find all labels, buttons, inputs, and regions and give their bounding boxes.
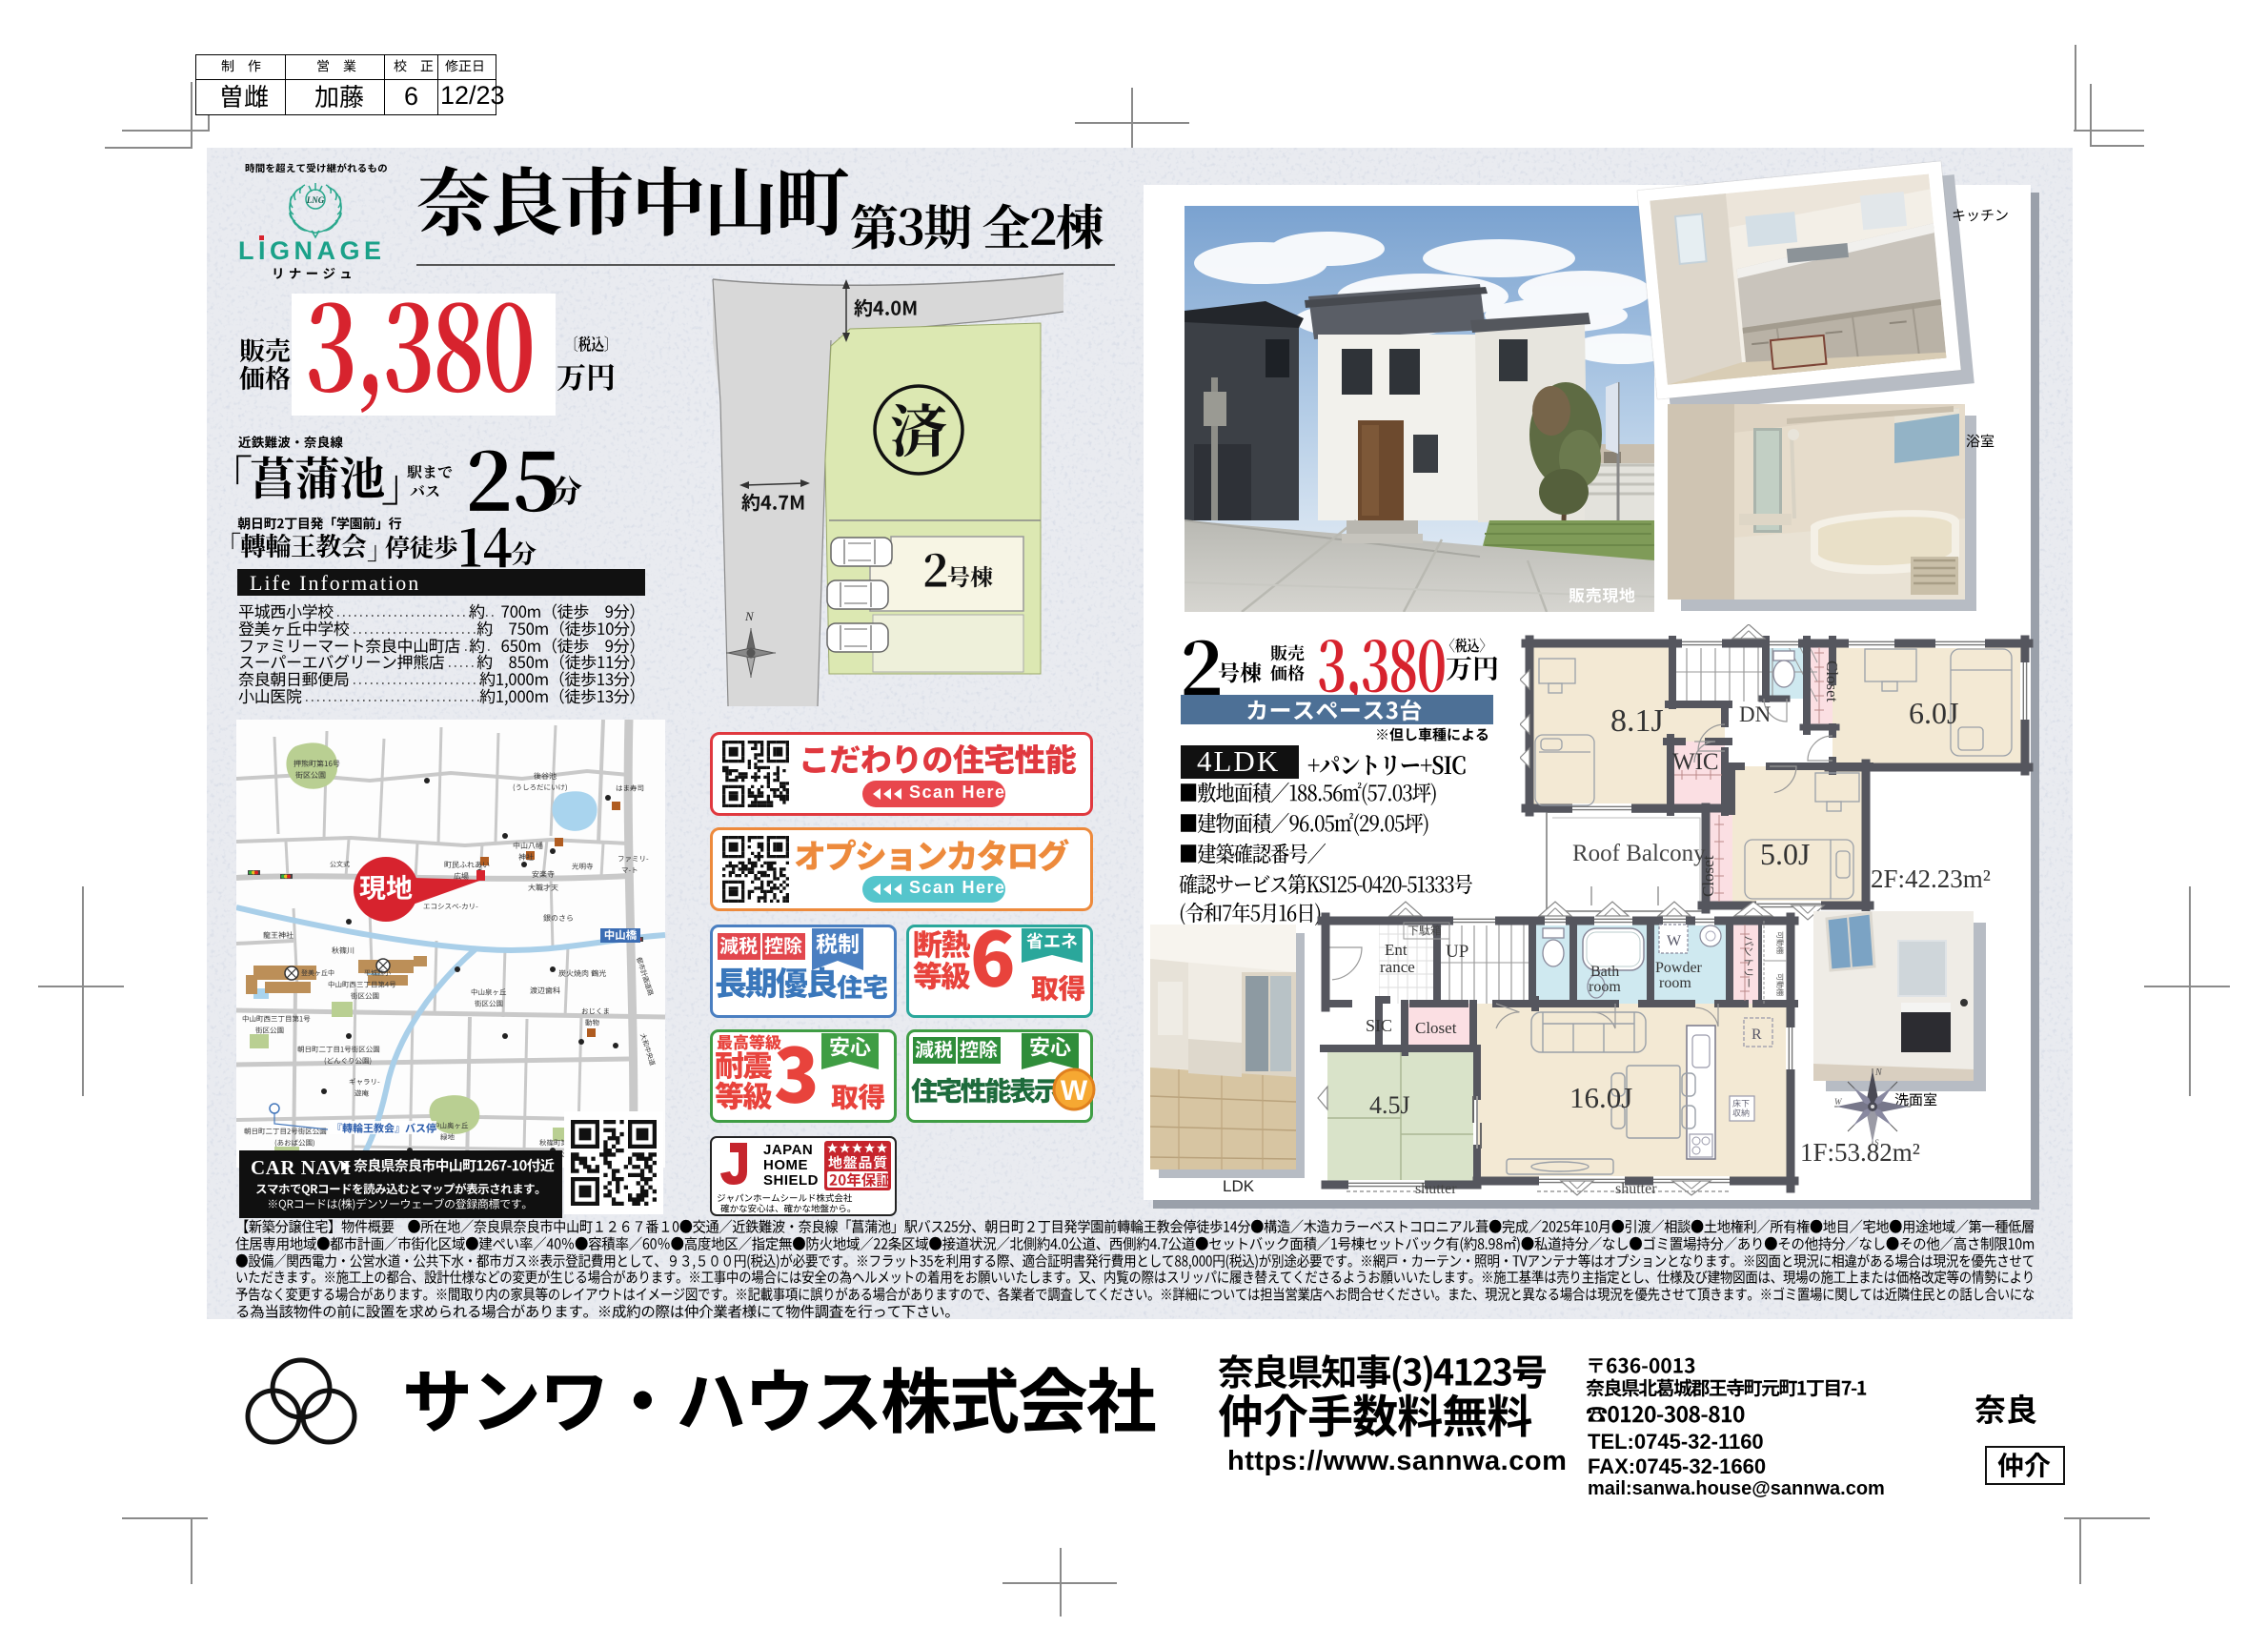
- svg-text:shutter: shutter: [1615, 1181, 1657, 1197]
- svg-text:shutter: shutter: [1415, 1181, 1457, 1197]
- svg-text:rance: rance: [1380, 958, 1415, 976]
- svg-text:Closet: Closet: [1823, 661, 1841, 702]
- svg-text:Closet: Closet: [1415, 1019, 1457, 1037]
- svg-text:N: N: [1874, 1067, 1883, 1078]
- svg-text:E: E: [1903, 1097, 1910, 1107]
- svg-text:W: W: [1667, 933, 1682, 949]
- svg-text:Roof Balcony: Roof Balcony: [1572, 841, 1706, 866]
- svg-text:R: R: [1752, 1027, 1762, 1043]
- svg-text:WIC: WIC: [1672, 749, 1719, 775]
- svg-text:6.0J: 6.0J: [1909, 696, 1958, 730]
- svg-text:5.0J: 5.0J: [1760, 837, 1810, 871]
- svg-text:Powder: Powder: [1655, 960, 1703, 976]
- svg-text:2F:42.23m²: 2F:42.23m²: [1871, 864, 1991, 893]
- svg-text:SIC: SIC: [1366, 1016, 1392, 1035]
- svg-text:DN: DN: [1739, 702, 1772, 726]
- svg-text:4.5J: 4.5J: [1369, 1091, 1410, 1119]
- svg-text:Bath: Bath: [1590, 964, 1619, 980]
- svg-text:Ent: Ent: [1385, 941, 1407, 959]
- svg-text:LNG: LNG: [306, 195, 325, 205]
- svg-text:W: W: [1834, 1097, 1843, 1107]
- svg-text:N: N: [744, 609, 755, 623]
- svg-text:UP: UP: [1446, 942, 1468, 962]
- svg-text:16.0J: 16.0J: [1569, 1081, 1632, 1114]
- svg-text:S: S: [1874, 1138, 1879, 1148]
- svg-text:W: W: [1061, 1075, 1088, 1107]
- svg-text:room: room: [1589, 979, 1621, 995]
- svg-text:room: room: [1659, 975, 1691, 991]
- svg-text:8.1J: 8.1J: [1610, 703, 1664, 739]
